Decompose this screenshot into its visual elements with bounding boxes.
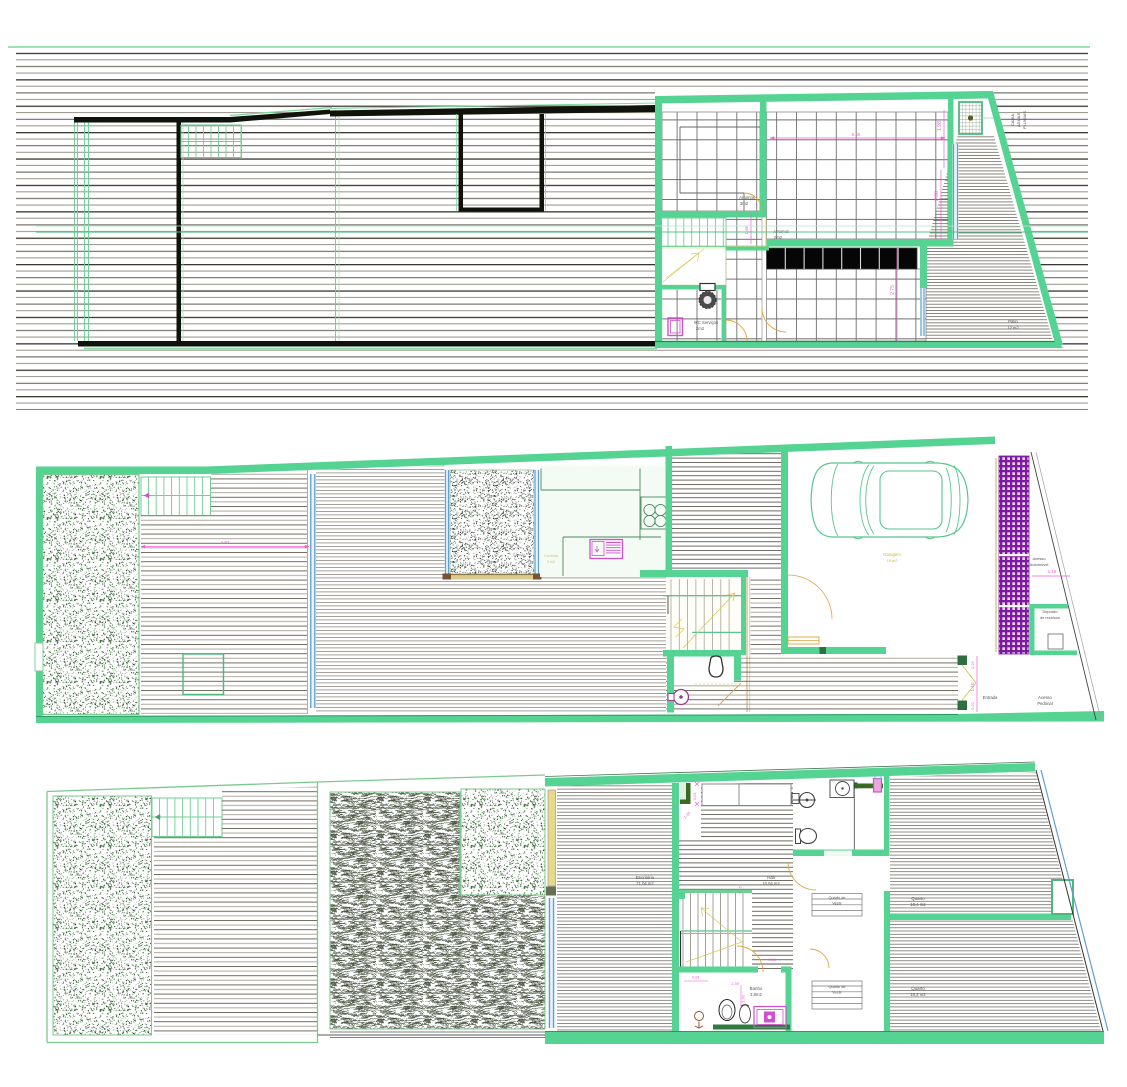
svg-text:Quarto de: Quarto de (829, 985, 846, 989)
svg-text:Vestir: Vestir (832, 991, 842, 995)
svg-text:2.39: 2.39 (731, 981, 740, 986)
svg-text:10,2 m2: 10,2 m2 (910, 992, 926, 997)
svg-text:12 m2: 12 m2 (1007, 325, 1019, 330)
svg-text:Pátio: Pátio (1008, 319, 1018, 324)
svg-text:9 m2: 9 m2 (547, 560, 555, 564)
svg-text:Banho: Banho (750, 986, 763, 991)
svg-text:Garagem: Garagem (883, 552, 901, 557)
svg-text:1.30: 1.30 (741, 994, 746, 1003)
svg-text:9.55: 9.55 (852, 132, 861, 137)
svg-text:Arrumos: Arrumos (739, 195, 755, 200)
svg-text:3,8m2: 3,8m2 (750, 992, 762, 997)
svg-text:0.86: 0.86 (768, 957, 777, 962)
svg-text:10,04 m2: 10,04 m2 (762, 881, 780, 886)
svg-text:CAIXA: CAIXA (1010, 114, 1015, 126)
svg-text:2m2: 2m2 (696, 326, 705, 331)
svg-text:1.60: 1.60 (744, 225, 749, 234)
svg-text:WC Serviços: WC Serviços (694, 320, 718, 325)
svg-text:1.10: 1.10 (970, 682, 975, 691)
svg-text:4.83: 4.83 (221, 540, 230, 545)
svg-text:Vestir: Vestir (832, 902, 842, 906)
svg-text:1.18: 1.18 (1048, 569, 1057, 574)
svg-text:Hall: Hall (767, 875, 775, 880)
svg-text:PLUVIAIS: PLUVIAIS (1022, 111, 1027, 129)
svg-text:0.61: 0.61 (692, 791, 697, 800)
svg-text:Acesso: Acesso (1032, 556, 1046, 561)
svg-text:ÁGUAS: ÁGUAS (1016, 113, 1021, 127)
svg-text:21,04 m2: 21,04 m2 (636, 881, 654, 886)
svg-text:0.15: 0.15 (738, 885, 743, 894)
svg-text:Entrada: Entrada (983, 695, 998, 700)
svg-text:acessível: acessível (520, 1018, 535, 1022)
svg-text:0.20: 0.20 (971, 702, 975, 709)
svg-text:1,4 m2: 1,4 m2 (513, 553, 524, 557)
svg-text:3m2: 3m2 (740, 201, 749, 206)
svg-text:Quarto de: Quarto de (829, 896, 846, 900)
svg-text:Depósito: Depósito (1043, 610, 1058, 614)
svg-text:2.75: 2.75 (890, 285, 896, 295)
svg-text:0.81: 0.81 (692, 975, 701, 980)
svg-text:19 m2: 19 m2 (886, 558, 898, 563)
svg-text:Escritório: Escritório (636, 875, 655, 880)
svg-text:Pedonal: Pedonal (1037, 701, 1052, 706)
svg-text:Cozinha: Cozinha (544, 554, 559, 558)
svg-text:Automóvel: Automóvel (1030, 562, 1049, 567)
svg-text:Quarto: Quarto (911, 986, 925, 991)
svg-text:10,4 m2: 10,4 m2 (910, 902, 926, 907)
svg-text:3.08: 3.08 (934, 191, 940, 201)
svg-text:cobertura não: cobertura não (516, 1013, 538, 1017)
svg-text:de resíduos: de resíduos (1040, 616, 1060, 620)
svg-text:1.98: 1.98 (937, 121, 943, 131)
svg-text:Acesso: Acesso (1038, 695, 1052, 700)
svg-text:Quarto: Quarto (911, 896, 925, 901)
svg-text:0.20: 0.20 (971, 661, 975, 668)
